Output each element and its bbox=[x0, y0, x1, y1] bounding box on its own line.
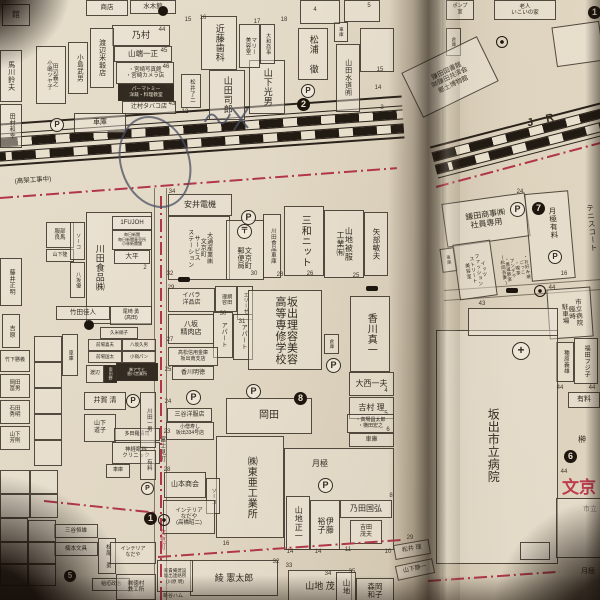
map-label: 車庫 bbox=[349, 433, 394, 447]
label-rojin-ikoi-no-ie: 老人 いこいの家 bbox=[494, 0, 556, 20]
block-number: 25 bbox=[163, 366, 173, 374]
label-kawada-foods: 川田食品㈱ bbox=[88, 220, 110, 316]
map-label: ポンプ 室 bbox=[446, 0, 474, 20]
label-toa-kogyosho: ㈱東亜工業所 bbox=[216, 436, 284, 538]
parking-icon: P bbox=[510, 202, 525, 217]
map-label: 網田 理容 bbox=[215, 286, 237, 312]
map-label: 車庫 bbox=[62, 334, 78, 376]
block-number: 28 bbox=[161, 466, 173, 474]
map-label: マリー 美容室 bbox=[239, 24, 260, 68]
block-number: 10 bbox=[382, 548, 394, 556]
map-point-8: 8 bbox=[294, 392, 307, 405]
building-outline bbox=[34, 362, 62, 388]
block-number: 14 bbox=[372, 84, 384, 92]
map-label: ㈱アサヒ 香川営業所 bbox=[116, 363, 158, 381]
label-takamatsu-shinkin: 高松信用金庫 坂出南支店 bbox=[168, 347, 218, 366]
map-label: 小僧寿し 坂出334号店 bbox=[166, 422, 214, 440]
map-number-marker: 1 bbox=[588, 6, 600, 19]
map-label: インテリア なだや (高橋昭二) bbox=[163, 500, 215, 534]
building-outline bbox=[28, 564, 56, 586]
block-number: 31 bbox=[236, 318, 248, 326]
parking-icon: P bbox=[141, 482, 154, 495]
map-label: 香川明徳 bbox=[172, 366, 214, 380]
map-label: 種原義雄 bbox=[556, 342, 574, 382]
block-number: 6 bbox=[383, 426, 393, 434]
parking-icon: P bbox=[301, 84, 315, 98]
block-number: 18 bbox=[278, 16, 290, 24]
map-label: 大和商事 bbox=[260, 24, 275, 64]
label-elevated-construction: (高架工事中) bbox=[2, 174, 65, 188]
map-point-2: 2 bbox=[297, 98, 310, 111]
block-number: 44 bbox=[156, 26, 168, 34]
block-number: 27 bbox=[164, 336, 176, 344]
parking-icon: P bbox=[318, 478, 333, 493]
block-number: 32 bbox=[164, 270, 176, 278]
map-point-7: 7 bbox=[532, 202, 545, 215]
map-label: ソーコ bbox=[70, 222, 85, 260]
map-label: 吉原 bbox=[2, 314, 20, 348]
block-number: 24 bbox=[514, 188, 526, 196]
map-label: 榊 bbox=[572, 432, 592, 448]
block-number: 16 bbox=[197, 14, 209, 22]
hospital-cross-icon: + bbox=[512, 342, 530, 360]
block-number: 34 bbox=[322, 570, 334, 578]
building-outline bbox=[0, 494, 30, 518]
map-label: 有料 bbox=[140, 450, 156, 480]
map-label: 山地 bbox=[336, 572, 356, 600]
block-number: 28 bbox=[274, 271, 286, 279]
label-gas-station: 大通産業㈱ 文京町 サービス ステーション bbox=[168, 216, 230, 280]
map-label: 竹下勝義 bbox=[0, 350, 30, 372]
map-label: 館 bbox=[2, 4, 30, 26]
block-number: 30 bbox=[217, 310, 229, 318]
building-outline bbox=[556, 498, 600, 558]
utility-marker bbox=[534, 285, 546, 297]
block-number: 43 bbox=[166, 100, 178, 108]
building-outline bbox=[34, 336, 62, 362]
map-label: 車庫 bbox=[334, 22, 348, 42]
label-yasui-denki: 安井電機 bbox=[168, 194, 232, 216]
block-number: 29 bbox=[404, 534, 416, 542]
map-label: 松井了二 bbox=[181, 74, 201, 108]
label-yamaji-hifuku: 山地被服 工業㈲ bbox=[324, 210, 364, 278]
map-label: 山下光男 bbox=[249, 60, 285, 114]
map-labels-layer: 館商店水木館乃村44山端一正45・宮崎写真館 ・宮崎カメラ店46パーマトミー 洋… bbox=[0, 0, 600, 600]
block-number: 24 bbox=[162, 398, 174, 406]
label-sakaide-beauty-school: 坂出理容美容 高等専修学校 bbox=[248, 290, 322, 370]
map-label: 商店 bbox=[86, 0, 128, 16]
map-label: 田辺義之 小嶋ツヤ子 bbox=[36, 46, 66, 104]
label-tennis-court: テニスコート bbox=[581, 189, 600, 266]
road-marker bbox=[178, 277, 190, 282]
building-outline bbox=[551, 21, 600, 67]
map-label: 八坂優 bbox=[70, 262, 85, 298]
block-number: 12 bbox=[179, 108, 191, 116]
map-label: ㈱徳村 鉄工所 bbox=[116, 574, 156, 600]
road-edge bbox=[166, 188, 167, 600]
parking-icon: P bbox=[548, 250, 562, 264]
building-outline bbox=[34, 440, 62, 466]
block-number: 45 bbox=[158, 47, 170, 55]
block-number: 8 bbox=[386, 492, 396, 500]
map-label: 川田一男 bbox=[140, 392, 156, 448]
map-photo: 館商店水木館乃村44山端一正45・宮崎写真館 ・宮崎カメラ店46パーマトミー 洋… bbox=[0, 0, 600, 600]
parking-icon: P bbox=[241, 210, 256, 225]
map-label: 山田水道㈲ bbox=[336, 44, 360, 112]
map-label: 1FUJOH bbox=[112, 216, 152, 230]
block-number: 26 bbox=[304, 270, 316, 278]
map-label: インテリア なだや bbox=[110, 542, 156, 564]
block-number: 44 bbox=[554, 384, 566, 392]
block-number: 5 bbox=[364, 2, 374, 10]
post-office-icon: 〒 bbox=[237, 224, 252, 239]
utility-marker bbox=[158, 514, 170, 526]
building-outline bbox=[520, 542, 550, 560]
marker-dot bbox=[84, 320, 94, 330]
block-number: 47 bbox=[164, 84, 176, 92]
map-label: 車庫 bbox=[74, 113, 126, 133]
label-kondo-dental: 近藤歯科 bbox=[201, 16, 237, 70]
block-number: 44 bbox=[586, 384, 598, 392]
map-label: 山下 道子 bbox=[84, 414, 116, 442]
map-label: 久米絹子 bbox=[100, 327, 138, 339]
block-number: 2 bbox=[140, 264, 150, 272]
building-outline bbox=[0, 470, 30, 494]
map-label: 渡辺 bbox=[86, 365, 104, 383]
block-number: 34 bbox=[166, 188, 178, 196]
block-number: 15 bbox=[182, 16, 194, 24]
building-outline bbox=[344, 0, 380, 22]
block-number: 14 bbox=[312, 548, 324, 556]
block-number: 30 bbox=[248, 270, 260, 278]
road-marker bbox=[506, 288, 518, 293]
block-number: 23 bbox=[161, 428, 173, 436]
map-label: 山田司郎 bbox=[209, 70, 245, 120]
map-point-5: 5 bbox=[64, 570, 76, 582]
map-label: 竹田佳人 bbox=[56, 306, 110, 320]
block-number: 29 bbox=[165, 284, 177, 292]
map-label: 大平 bbox=[114, 250, 150, 264]
utility-marker bbox=[496, 36, 508, 48]
map-label: 南田野 bbox=[104, 365, 117, 383]
map-point-6: 6 bbox=[564, 450, 577, 463]
building-outline bbox=[0, 542, 28, 564]
block-number: 16 bbox=[558, 270, 570, 278]
map-label: 三谷恒雄 bbox=[54, 524, 98, 538]
map-label: 森岡 和子 bbox=[356, 578, 394, 600]
block-number: 11 bbox=[342, 546, 354, 554]
building-outline bbox=[300, 0, 340, 24]
block-number: 15 bbox=[374, 66, 386, 74]
block-number: 44 bbox=[558, 468, 570, 476]
map-label: 福田フジ子 bbox=[574, 338, 598, 384]
block-number: 32 bbox=[270, 558, 282, 566]
block-number: 14 bbox=[284, 548, 296, 556]
building-outline bbox=[34, 388, 62, 414]
parking-icon: P bbox=[50, 118, 64, 132]
parking-icon: P bbox=[186, 390, 201, 405]
map-label: 川田食品車庫 bbox=[263, 214, 281, 278]
bus-stop-marker bbox=[158, 6, 168, 16]
building-outline bbox=[0, 518, 28, 542]
map-label: ㈲貴縄建設 坂出連絡所 (川原 明) bbox=[157, 560, 193, 592]
map-label: 尾崎 勇 (高田) bbox=[110, 306, 152, 325]
map-label: 田村和幸 bbox=[0, 104, 22, 148]
building-outline bbox=[468, 308, 558, 336]
map-label: 岡田 冨男 bbox=[0, 374, 30, 398]
map-point-1: 1 bbox=[144, 512, 157, 525]
block-number: 16 bbox=[220, 540, 232, 548]
map-label: 三谷洋服店 bbox=[167, 408, 212, 422]
map-label: 馬川鈴夫 bbox=[0, 50, 22, 102]
map-label: 車庫 bbox=[106, 464, 130, 478]
map-label: 小嶺パン bbox=[122, 351, 156, 363]
block-number: 44 bbox=[546, 284, 558, 292]
map-label: 倉庫 bbox=[324, 334, 339, 354]
block-number: 33 bbox=[283, 562, 295, 570]
map-label: 水木館 bbox=[130, 0, 176, 14]
parking-icon: P bbox=[246, 384, 261, 399]
label-tsukigime-parking: 月極 bbox=[300, 458, 340, 471]
map-label: 前場国太 bbox=[88, 351, 122, 363]
map-label: 石田 秀明 bbox=[0, 400, 30, 424]
map-label: 山本商会 bbox=[164, 472, 206, 498]
map-label: 香川真一 bbox=[350, 296, 390, 372]
block-number: 3 bbox=[377, 104, 387, 112]
label-sakaide-city-hospital: 坂出市立病院 bbox=[480, 370, 506, 520]
block-number: 35 bbox=[346, 568, 358, 576]
parking-icon: P bbox=[326, 358, 341, 373]
map-label: 楠本文具 bbox=[54, 542, 98, 556]
block-number: 4 bbox=[310, 6, 320, 14]
building-outline bbox=[28, 520, 56, 542]
map-label: 松浦 徹 bbox=[298, 28, 328, 80]
map-label: 前場喜夫 bbox=[88, 339, 122, 351]
block-number: 43 bbox=[476, 300, 488, 308]
building-outline bbox=[30, 494, 58, 518]
block-number: 46 bbox=[160, 63, 172, 71]
map-label: 松井 理 bbox=[393, 539, 431, 560]
building-outline bbox=[28, 542, 56, 564]
road-marker bbox=[366, 286, 378, 291]
map-label: 井賀 清 bbox=[84, 392, 126, 410]
label-sanwa-knit: 三和ニット bbox=[284, 206, 324, 276]
map-label: 渡辺米穀店 bbox=[90, 28, 114, 88]
map-label: 八坂久男 bbox=[122, 339, 156, 351]
building-outline bbox=[0, 564, 28, 586]
map-label: 藤井正明 bbox=[0, 258, 22, 306]
map-label: 乃田国弘 bbox=[340, 500, 392, 518]
map-label: 有料 bbox=[568, 392, 600, 408]
parking-icon: P bbox=[126, 394, 140, 408]
map-label: 山地正一 bbox=[286, 496, 310, 550]
block-number: 17 bbox=[251, 18, 263, 26]
map-label: 山下 芳則 bbox=[0, 426, 30, 450]
block-number: 4 bbox=[381, 387, 391, 395]
map-label: 月極 bbox=[574, 566, 600, 578]
block-number: 25 bbox=[350, 272, 362, 280]
map-label: 小島武男 bbox=[68, 42, 88, 94]
building-outline bbox=[30, 470, 58, 494]
map-label: 山下静一 bbox=[395, 558, 435, 581]
block-number: 5 bbox=[381, 410, 391, 418]
map-label: 綾 憲太郎 bbox=[190, 560, 278, 596]
map-label: 矢部敏夫 bbox=[364, 212, 388, 276]
building-outline bbox=[34, 414, 62, 440]
map-label: 伊藤 裕子 bbox=[310, 500, 340, 550]
map-label: 毎日新聞 毎日新聞専売所 小林新聞舗 bbox=[112, 230, 152, 250]
